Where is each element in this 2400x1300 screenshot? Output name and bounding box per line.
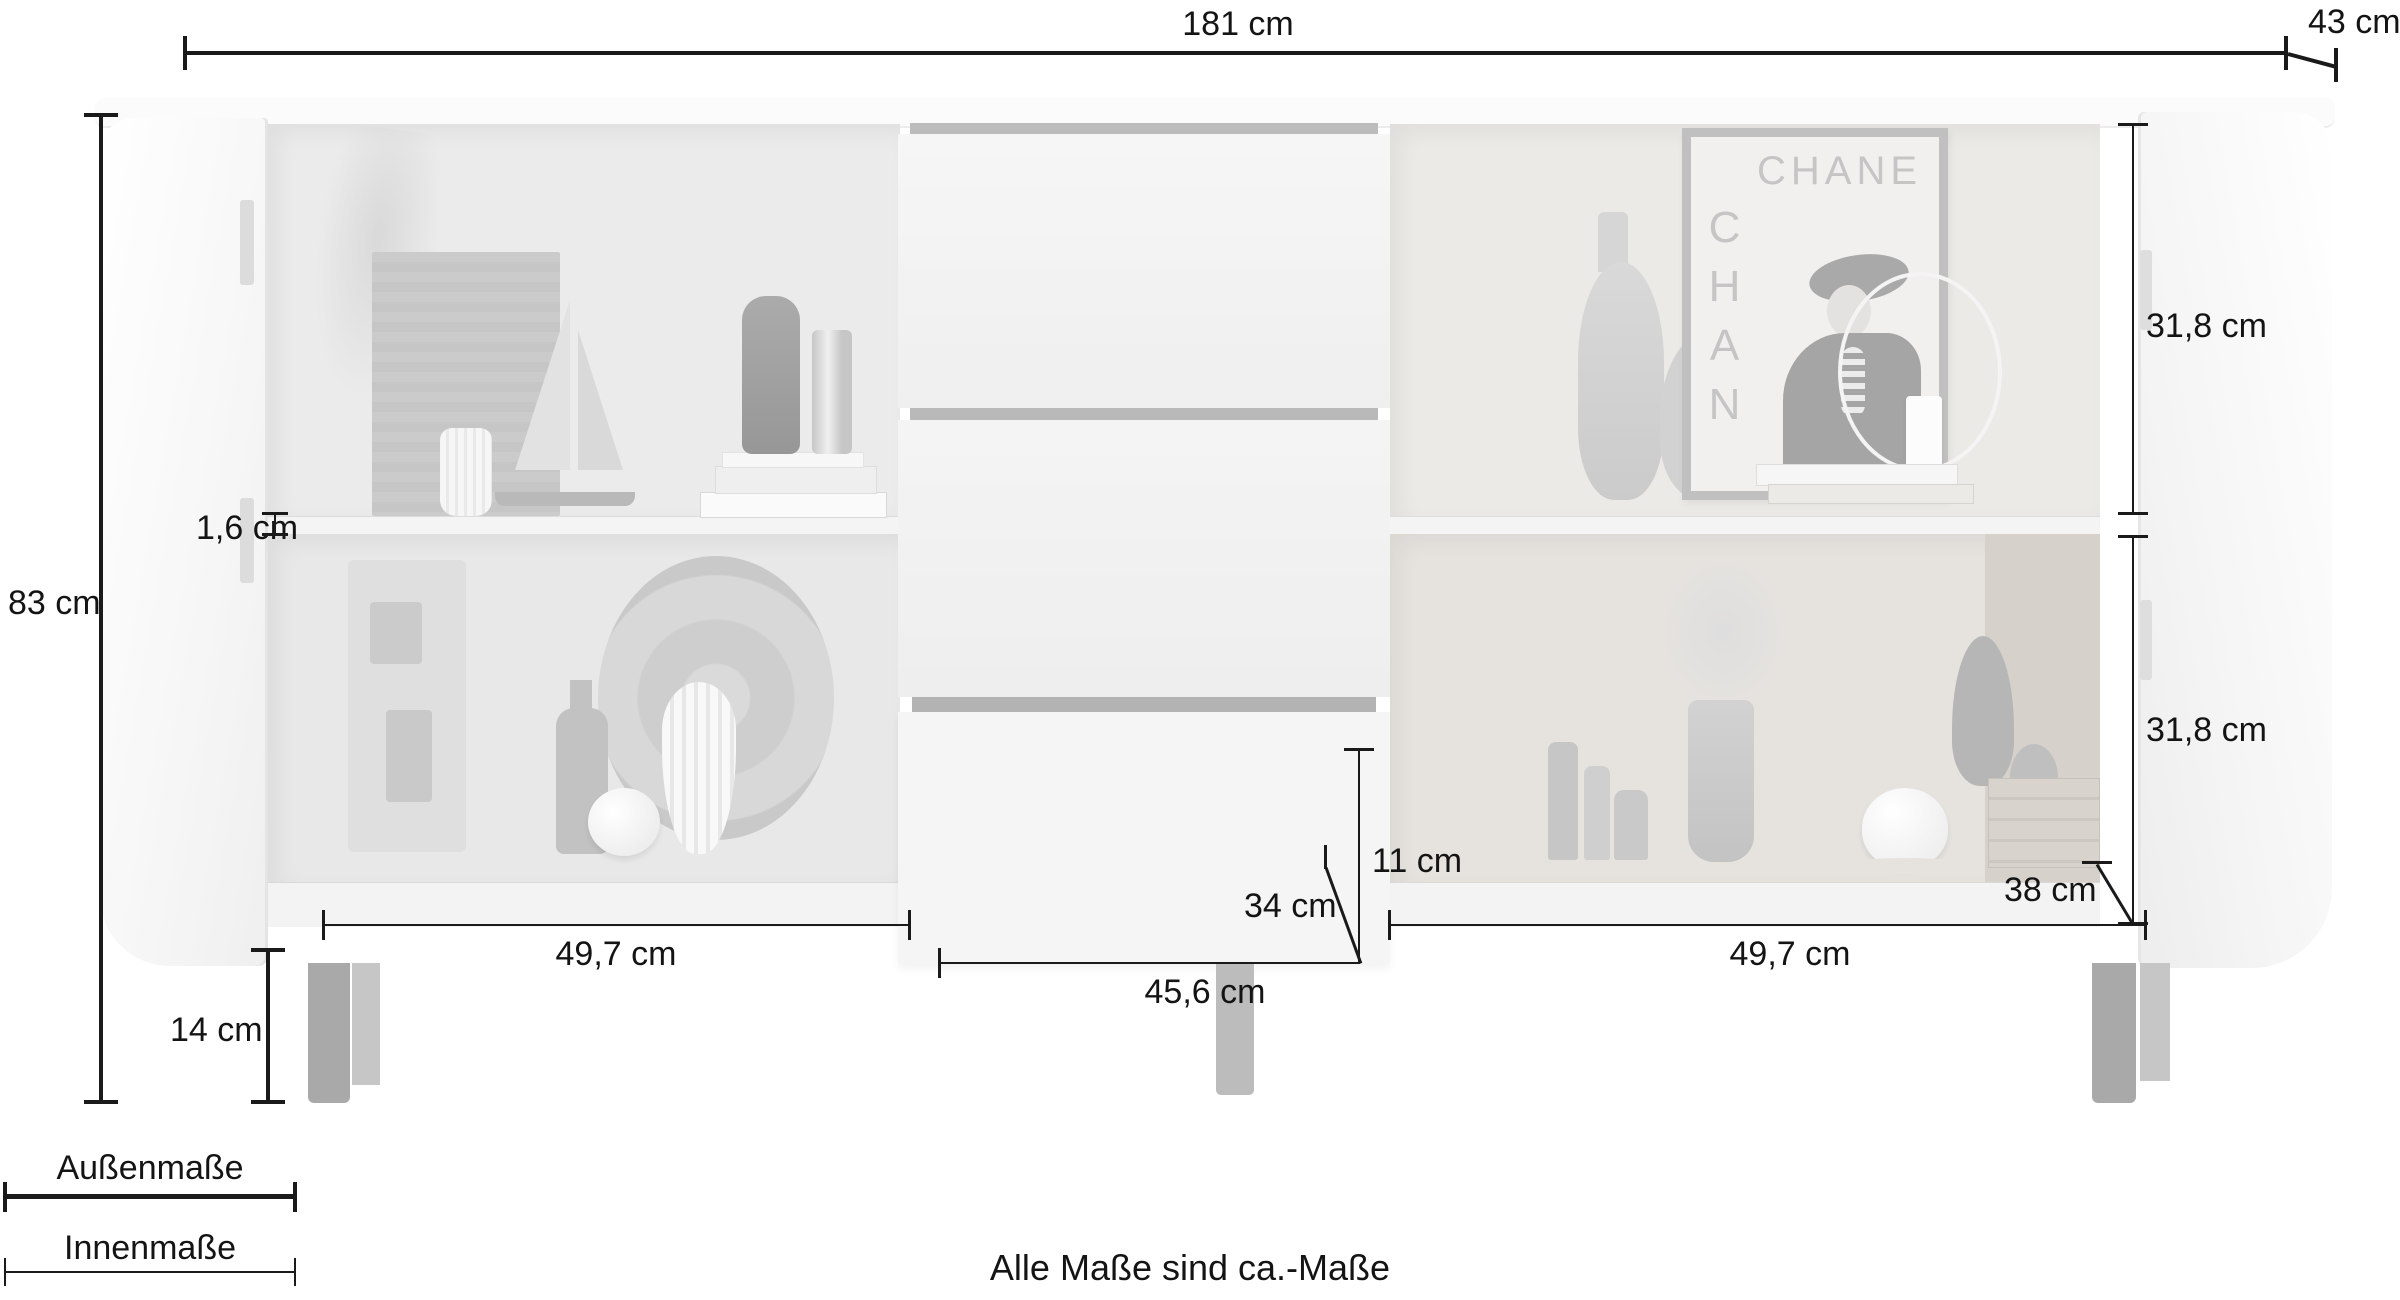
small-bottle — [1584, 766, 1610, 860]
art-cutout — [386, 710, 432, 802]
dim-tick — [908, 910, 911, 940]
dim-tick — [938, 948, 941, 978]
right-door-hinge-icon — [2140, 600, 2152, 680]
dim-left-inner-width-label: 49,7 cm — [498, 936, 734, 973]
dim-right-inner-bottom-label: 31,8 cm — [2146, 712, 2267, 749]
dim-drawer-height-line — [1358, 750, 1360, 963]
book-stack — [700, 492, 887, 518]
dim-total-width-line — [185, 51, 2287, 55]
drawer-gap — [912, 697, 1376, 712]
legend-inner-label: Innenmaße — [5, 1230, 295, 1267]
dim-tick — [262, 533, 288, 536]
dark-vase — [742, 296, 800, 454]
dim-drawer-width-line — [940, 962, 1360, 964]
leg-right-back — [2140, 963, 2170, 1081]
dim-tick — [251, 1100, 285, 1104]
dim-leg-height-label: 14 cm — [170, 1012, 263, 1049]
dim-tick — [294, 1258, 296, 1286]
dim-tick — [2334, 48, 2338, 82]
glass-cylinder-vase — [812, 330, 852, 454]
poster-brand-horizontal: CHANE — [1757, 149, 1933, 193]
right-door — [2138, 112, 2332, 968]
dim-drawer-width-label: 45,6 cm — [1087, 974, 1323, 1011]
dim-total-width-label: 181 cm — [1128, 6, 1348, 43]
tall-terracotta-vase — [1578, 262, 1664, 500]
sailboat-sail — [578, 330, 623, 470]
dim-right-inner-top-line — [2132, 125, 2134, 515]
drawer-gap — [910, 408, 1378, 420]
dim-depth-label: 43 cm — [2308, 4, 2400, 41]
left-bottom-board — [268, 882, 900, 927]
leg-right-front — [2092, 963, 2136, 1103]
dim-tick — [2118, 535, 2148, 538]
dim-right-inner-bottom-line — [2132, 537, 2134, 925]
dim-tick — [183, 36, 187, 70]
wooden-crate — [1988, 778, 2100, 868]
dim-shelf-thickness-line — [274, 514, 276, 533]
book-stack — [722, 452, 864, 468]
dim-tick — [251, 948, 285, 952]
drawer-gap — [910, 123, 1378, 134]
dim-leg-height-line — [266, 950, 270, 1102]
dim-tick — [1388, 910, 1391, 940]
drawer-front-middle — [898, 420, 1390, 697]
ribbed-vase — [440, 428, 492, 516]
small-bottle — [1548, 742, 1578, 860]
tray-books — [1768, 484, 1974, 504]
poster-brand-vertical: CHAN — [1699, 203, 1749, 439]
drawer-front-top — [898, 134, 1390, 408]
tray-books — [1756, 464, 1958, 486]
candle — [1906, 396, 1942, 470]
left-door-hinge-icon — [240, 200, 254, 285]
dim-tick — [2118, 123, 2148, 126]
right-bottom-board — [1390, 882, 2100, 927]
dim-inner-depth-label: 38 cm — [2004, 872, 2097, 909]
sideboard: CHANE CHAN — [0, 0, 2400, 1300]
dim-drawer-height-label: 11 cm — [1372, 843, 1462, 880]
dim-tick — [4, 1258, 6, 1286]
sailboat-sail — [515, 300, 570, 470]
approximate-dimensions-note: Alle Maße sind ca.-Maße — [940, 1248, 1440, 1288]
dim-height-label: 83 cm — [8, 585, 101, 622]
leg-left-back — [352, 963, 380, 1085]
dim-tick — [293, 1182, 297, 1212]
dim-tick — [322, 910, 325, 940]
dim-tick — [1344, 748, 1374, 751]
leg-left-front — [308, 963, 350, 1103]
grass-vase — [1688, 700, 1754, 862]
dim-tick — [2118, 512, 2148, 515]
dim-tick — [2144, 910, 2147, 940]
egg-vase — [1862, 788, 1948, 868]
dim-tick — [84, 113, 118, 117]
abstract-art-piece — [348, 560, 466, 852]
dim-tick — [3, 1182, 7, 1212]
product-dimension-diagram: CHANE CHAN — [0, 0, 2400, 1300]
dim-shelf-thickness-label: 1,6 cm — [196, 510, 298, 547]
legend-outer-line — [5, 1194, 295, 1199]
dim-tick — [84, 1100, 118, 1104]
book-stack — [715, 466, 877, 494]
legend-inner-line — [5, 1271, 295, 1273]
dried-grass-plume — [1656, 552, 1790, 712]
dim-drawer-depth-label: 34 cm — [1244, 888, 1330, 925]
dim-left-inner-width-line — [324, 924, 910, 926]
legend-outer-label: Außenmaße — [5, 1150, 295, 1187]
plate-under-vase — [1840, 858, 1970, 874]
dim-right-inner-width-label: 49,7 cm — [1672, 936, 1908, 973]
art-cutout — [370, 602, 422, 664]
sphere-vase — [588, 788, 660, 856]
dim-tick — [1324, 845, 1327, 869]
small-bottle — [1614, 790, 1648, 860]
sailboat-hull — [495, 492, 635, 506]
dim-right-inner-top-label: 31,8 cm — [2146, 308, 2267, 345]
dim-right-inner-width-line — [1390, 924, 2146, 926]
